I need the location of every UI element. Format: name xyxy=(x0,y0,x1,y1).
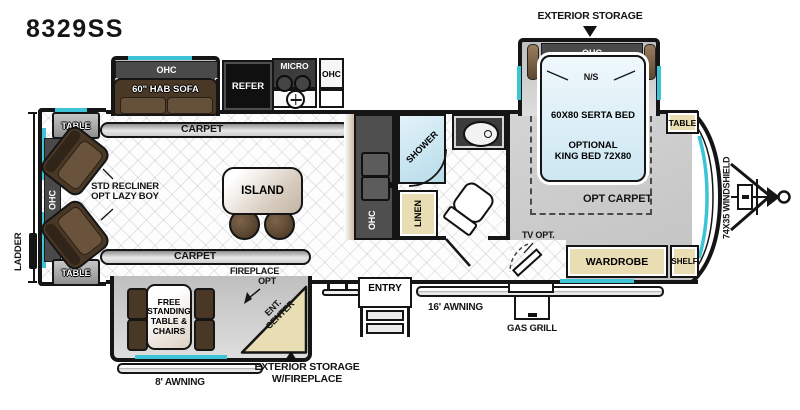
galley-sink xyxy=(361,176,390,201)
galley-sink xyxy=(361,152,390,177)
dinette-chair xyxy=(127,319,148,351)
entry-door: ENTRY xyxy=(358,277,412,308)
awning-8-label: 8' AWNING xyxy=(130,377,230,388)
gas-grill-label: GAS GRILL xyxy=(498,324,566,334)
gas-grill xyxy=(514,295,550,320)
wardrobe: WARDROBE xyxy=(566,245,668,278)
gas-grill-bracket xyxy=(508,282,554,293)
carpet-bottom-label: CARPET xyxy=(158,251,232,263)
shelf: SHELF xyxy=(670,245,699,278)
bed-slide-window-left xyxy=(517,66,521,100)
kitchen-island: ISLAND xyxy=(222,167,303,215)
bathroom-sink xyxy=(463,121,499,147)
sink-drain xyxy=(484,130,492,138)
bed-slide-window-right xyxy=(657,66,661,100)
entry-label: ENTRY xyxy=(360,283,410,294)
handle-post xyxy=(345,282,348,290)
rear-top-wall-window xyxy=(55,108,87,112)
opt-carpet-label: OPT CARPET xyxy=(560,193,675,205)
ladder-bracket-tick-bottom xyxy=(28,281,37,283)
bath-wall-right xyxy=(506,114,510,240)
bathroom-shower: SHOWER xyxy=(398,114,446,184)
sofa-label: 60" HAB SOFA xyxy=(115,84,216,95)
bathroom-vanity xyxy=(452,114,506,150)
floorplan-8329ss: 8329SS 74X35 WINDSHIELD LADDER OHC TABLE… xyxy=(0,0,800,410)
awning-8-rail xyxy=(117,363,263,374)
carpet-top-label: CARPET xyxy=(165,124,239,136)
exterior-storage-top-label: EXTERIOR STORAGE xyxy=(519,11,661,23)
handle-post xyxy=(327,282,330,290)
recliner-label: STD RECLINER OPT LAZY BOY xyxy=(86,182,164,203)
sofa-slide-window xyxy=(128,56,192,60)
awning-16-label: 16' AWNING xyxy=(408,302,503,313)
bed-label: 60X80 SERTA BED xyxy=(542,110,644,121)
windshield-label: 74X35 WINDSHIELD xyxy=(720,140,735,256)
sofa-cushion xyxy=(167,97,213,114)
nightstand-label: N/S xyxy=(570,73,612,83)
kitchen-base-cabinet xyxy=(319,89,344,108)
dinette-slide-window xyxy=(135,355,227,359)
shower-label: SHOWER xyxy=(399,124,446,171)
dinette-chair xyxy=(194,288,215,320)
linen-closet: LINEN xyxy=(398,190,438,238)
nightstand-left xyxy=(527,44,539,80)
galley-counter-edge xyxy=(344,114,354,240)
ohc-sofa-cabinet: OHC xyxy=(115,61,218,79)
ohc-kitchen-cabinet: OHC xyxy=(319,58,344,89)
ohc-galley-label: OHC xyxy=(366,202,380,238)
ladder-label: LADDER xyxy=(12,224,26,280)
bedroom-wall-window xyxy=(560,279,634,283)
dinette-chair xyxy=(194,319,215,351)
model-number: 8329SS xyxy=(26,16,146,44)
entry-steps xyxy=(366,310,404,321)
sofa-cushion xyxy=(120,97,166,114)
microwave-label: MICRO xyxy=(274,61,315,71)
dinette-chair xyxy=(127,288,148,320)
dinette-table: FREE STANDING TABLE & CHAIRS xyxy=(146,284,192,350)
ladder-bracket-tick-top xyxy=(28,112,37,114)
fireplace-option-label: FIREPLACE OPT xyxy=(230,267,276,287)
stove-burner-small xyxy=(276,75,293,92)
entry-step-rail xyxy=(360,306,363,337)
entry-steps xyxy=(366,323,404,334)
grill-burner xyxy=(528,313,537,317)
stove-burner-large xyxy=(286,90,305,109)
table-front: TABLE xyxy=(666,111,699,134)
bath-wall-bottom-right xyxy=(488,236,510,240)
refrigerator: REFER xyxy=(222,60,274,112)
ladder xyxy=(29,233,37,269)
tv-option-label: TV OPT. xyxy=(522,231,574,241)
sofa: 60" HAB SOFA xyxy=(113,78,218,116)
bed-option-label: OPTIONAL KING BED 72X80 xyxy=(542,141,644,163)
exterior-storage-bottom-label: EXTERIOR STORAGE W/FIREPLACE xyxy=(247,362,367,385)
grab-handle xyxy=(322,289,360,296)
storage-arrow-down-icon xyxy=(583,26,597,37)
